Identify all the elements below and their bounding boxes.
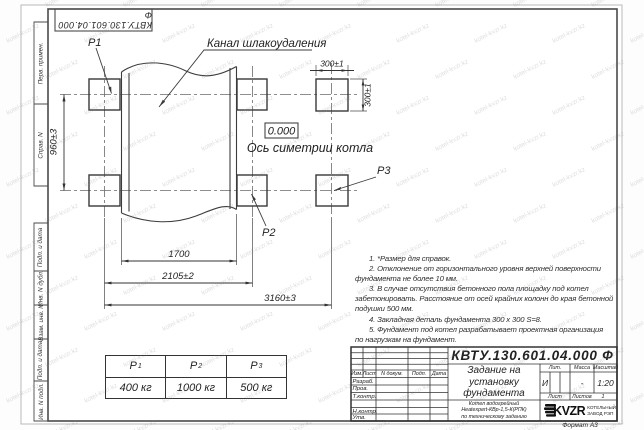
note-line: 1. *Размер для справок.	[355, 254, 623, 264]
row-razrab: Разраб.	[353, 378, 377, 385]
company-block: KVZR КОТЕЛЬНЫЙ ЗАВОД РЭП	[541, 400, 616, 421]
corner-stamp: КВТУ.130.601.04.000 Ф	[55, 9, 152, 31]
dim-300w-label: 300±1	[320, 59, 344, 69]
p-subscript: 3	[259, 363, 263, 370]
note-line: забетонировать. Расстояние от осей крайн…	[355, 294, 623, 304]
margin-stamp-inv-dubl: Инв. N дубл.	[34, 271, 48, 305]
company-line: ЗАВОД РЭП	[587, 411, 616, 416]
title-block-doc-number: КВТУ.130.601.04.000 Ф	[450, 348, 615, 363]
load-value-p3: 500 кг	[226, 378, 286, 399]
margin-stamp-label: Инв. N подл.	[38, 383, 45, 420]
col-sign: Подп.	[408, 370, 430, 378]
load-table: P1 P2 P3 400 кг 1000 кг 500 кг	[105, 355, 287, 399]
company-name: КОТЕЛЬНЫЙ ЗАВОД РЭП	[587, 405, 616, 415]
dim-960-label: 960±3	[49, 128, 60, 155]
p3-label: P3	[377, 165, 391, 177]
title-block-title: Задание на установку фундамента	[449, 365, 539, 400]
kvzr-logo-text: KVZR	[553, 404, 585, 418]
notes-block: 1. *Размер для справок. 2. Отклонение от…	[355, 254, 623, 345]
col-date: Дата	[430, 370, 448, 378]
load-table-header-row: P1 P2 P3	[106, 356, 286, 378]
note-line: 5. Фундамент под котел разрабатывает про…	[355, 325, 623, 335]
load-value-p1: 400 кг	[106, 378, 165, 399]
p2-label: P2	[262, 227, 275, 239]
axis-label: Ось симетрии котла	[247, 141, 373, 155]
channel-label: Канал шлакоудаления	[207, 38, 326, 50]
margin-stamp-vzam-inv: Взам. инв. N	[34, 305, 48, 339]
margin-stamp-inv-podl: Инв. N подл.	[34, 381, 48, 421]
margin-stamp-label: Взам. инв. N	[38, 304, 45, 341]
row-prov: Пров.	[353, 386, 377, 393]
row-tkontr: Т.контр.	[353, 393, 377, 400]
margin-stamp-podp-data-1: Подп. и дата	[34, 223, 48, 271]
p-symbol: P	[130, 360, 137, 372]
lit-label: Лит.	[540, 365, 570, 372]
scale-value: 1:20	[594, 372, 617, 393]
sheets-total-value: 1	[596, 393, 610, 400]
p-symbol: P	[190, 360, 197, 372]
margin-stamp-sprav-n: Справ. N	[34, 104, 48, 186]
p-subscript: 1	[138, 363, 142, 370]
note-line: подушки 500 мм.	[355, 304, 623, 314]
dim-1700-label: 1700	[168, 249, 190, 260]
margin-stamp-label: Перв. примен.	[38, 42, 45, 84]
margin-stamp-label: Справ. N	[38, 132, 45, 158]
p-subscript: 2	[198, 363, 202, 370]
corner-stamp-text: КВТУ.130.601.04.000 Ф	[55, 10, 152, 30]
dim-3160-label: 3160±3	[264, 293, 296, 304]
sheet-number-label: Лист	[540, 393, 570, 400]
format-label: Формат А3	[540, 422, 620, 430]
note-line: фундамента не более 10 мм.	[355, 274, 623, 284]
load-table-value-row: 400 кг 1000 кг 500 кг	[106, 378, 286, 399]
mass-label: Масса	[570, 365, 594, 372]
p-symbol: P	[250, 360, 257, 372]
title-line: Задание на	[467, 365, 520, 377]
margin-stamp-podp-data-2: Подп. и дата	[34, 339, 48, 381]
load-table-header-p1: P1	[106, 356, 165, 377]
p1-label: P1	[88, 37, 101, 49]
product-line: по техническому заданию	[461, 414, 526, 420]
note-line: 3. В случае отсутствия бетонного пола пл…	[355, 284, 623, 294]
scale-label: Масштаб	[594, 365, 617, 372]
sheets-total-label: Листов	[572, 393, 596, 400]
lit-value: И	[540, 372, 550, 393]
product-name: Котел водогрейный Heatexpert-КВр-1,5-К(Р…	[449, 401, 539, 420]
margin-stamp-perv-primen: Перв. примен.	[34, 22, 48, 104]
row-utv: Утв.	[353, 415, 377, 422]
note-line: 2. Отклонение от горизонтального уровня …	[355, 264, 623, 274]
load-table-header-p3: P3	[226, 356, 286, 377]
margin-stamp-label: Подп. и дата	[38, 227, 45, 266]
col-doc: N докум.	[376, 370, 408, 378]
drawing-sheet: Канал шлакоудаления P1 P2 P3 0.000 Ось с…	[0, 0, 644, 430]
margin-stamp-label: Инв. N дубл.	[38, 270, 45, 306]
col-izm: Изм.	[351, 370, 363, 378]
load-value-p2: 1000 кг	[165, 378, 225, 399]
note-line: по нагрузкам на фундамент.	[355, 335, 623, 345]
col-list: Лист	[363, 370, 376, 378]
title-line: фундамента	[463, 388, 524, 400]
elevation-value: 0.000	[268, 126, 296, 138]
margin-stamp-label: Подп. и дата	[38, 340, 45, 379]
dim-2105-label: 2105±2	[161, 271, 194, 282]
load-table-header-p2: P2	[165, 356, 225, 377]
title-line: установку	[469, 377, 519, 389]
note-line: 4. Закладная деталь фундамента 300 х 300…	[355, 315, 623, 325]
mass-value: -	[570, 372, 594, 393]
dim-300h-label: 300±1	[363, 83, 373, 107]
